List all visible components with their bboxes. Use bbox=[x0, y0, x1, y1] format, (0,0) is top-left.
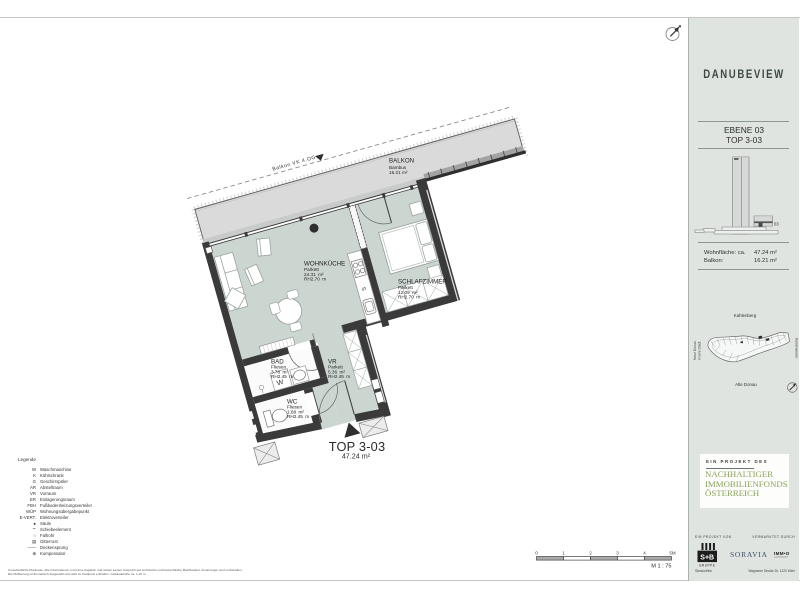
svg-text:1: 1 bbox=[562, 551, 565, 556]
svg-text:3: 3 bbox=[616, 551, 619, 556]
svg-text:5M: 5M bbox=[669, 551, 676, 556]
svg-text:2: 2 bbox=[589, 551, 592, 556]
svg-text:0: 0 bbox=[535, 551, 538, 556]
svg-text:M 1 : 75: M 1 : 75 bbox=[651, 564, 671, 570]
svg-text:4: 4 bbox=[643, 551, 646, 556]
